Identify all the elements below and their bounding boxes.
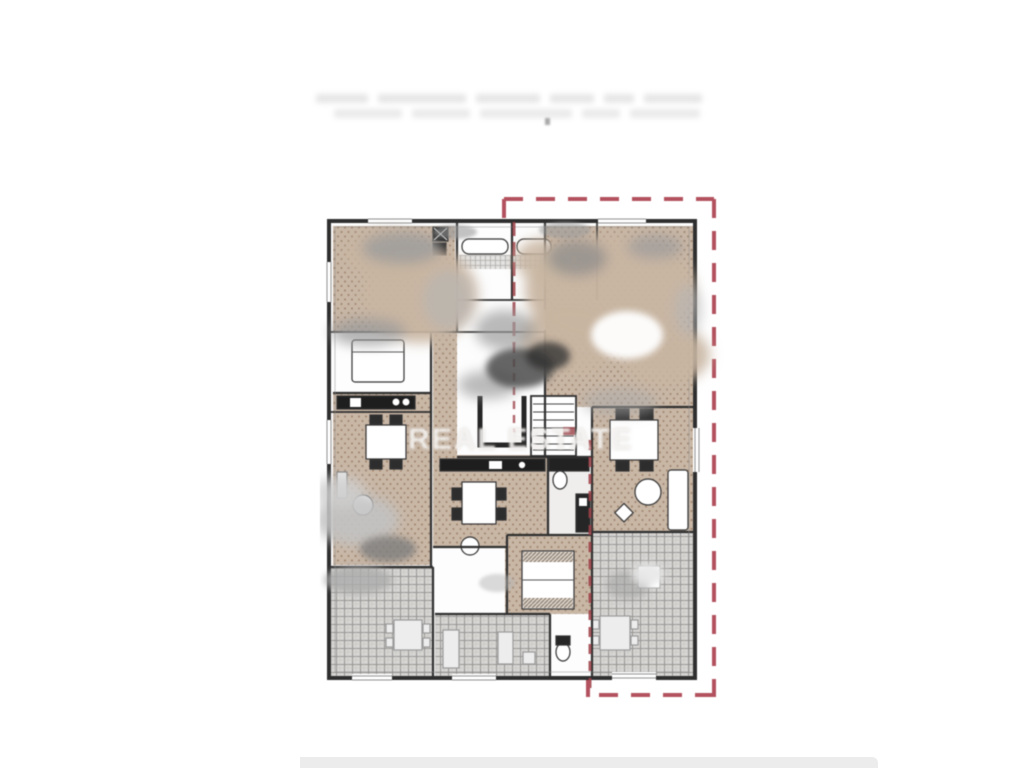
bed	[352, 340, 404, 382]
caption-mark	[545, 118, 550, 125]
bath-cabinet	[549, 458, 589, 471]
bathtub-icon	[462, 239, 508, 254]
blurred-caption-line-1	[316, 94, 696, 103]
blurred-caption-line-2	[334, 109, 696, 118]
sofa	[668, 470, 688, 530]
toilet-icon	[556, 643, 570, 661]
footer-bar	[300, 757, 878, 768]
blurred-caption	[316, 94, 696, 118]
terrace-right	[592, 532, 695, 678]
round-table	[635, 479, 661, 505]
white-patch	[591, 311, 663, 359]
double-bed	[522, 551, 574, 609]
watermark: REAL ESTATE	[408, 423, 628, 457]
toilet-icon	[553, 471, 567, 489]
